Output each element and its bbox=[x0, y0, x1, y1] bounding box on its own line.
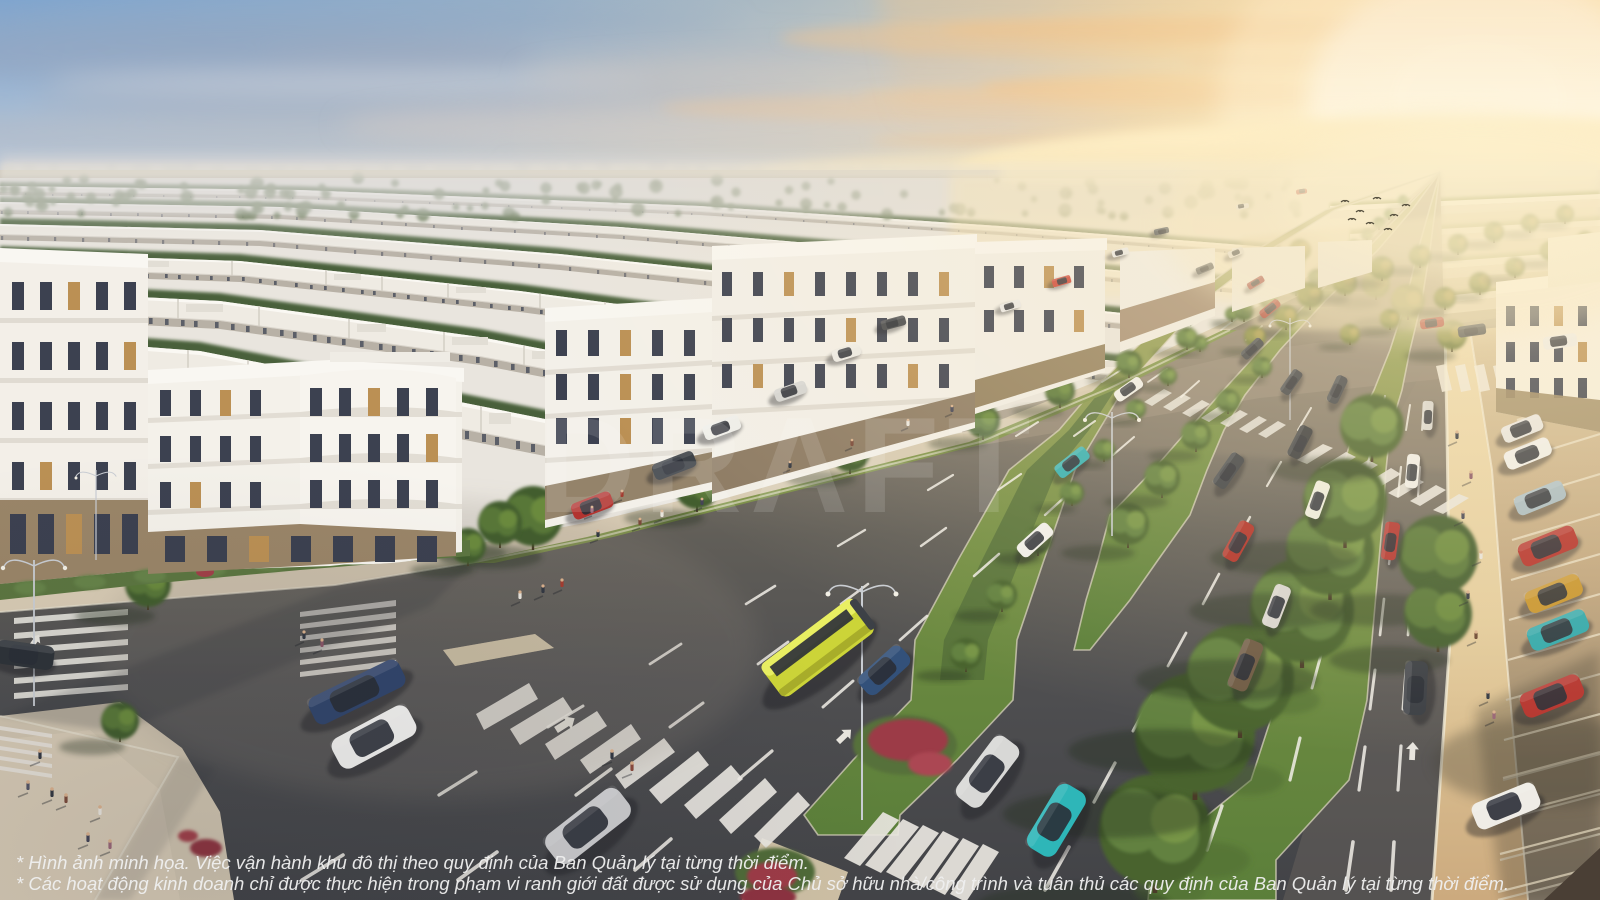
svg-text:* Hình ảnh minh họa. Việc vận: * Hình ảnh minh họa. Việc vận hành khu đ… bbox=[16, 852, 809, 873]
svg-text:* Các hoạt động kinh doanh chỉ: * Các hoạt động kinh doanh chỉ được thực… bbox=[16, 873, 1509, 894]
svg-text:DRAFT: DRAFT bbox=[538, 389, 1039, 541]
